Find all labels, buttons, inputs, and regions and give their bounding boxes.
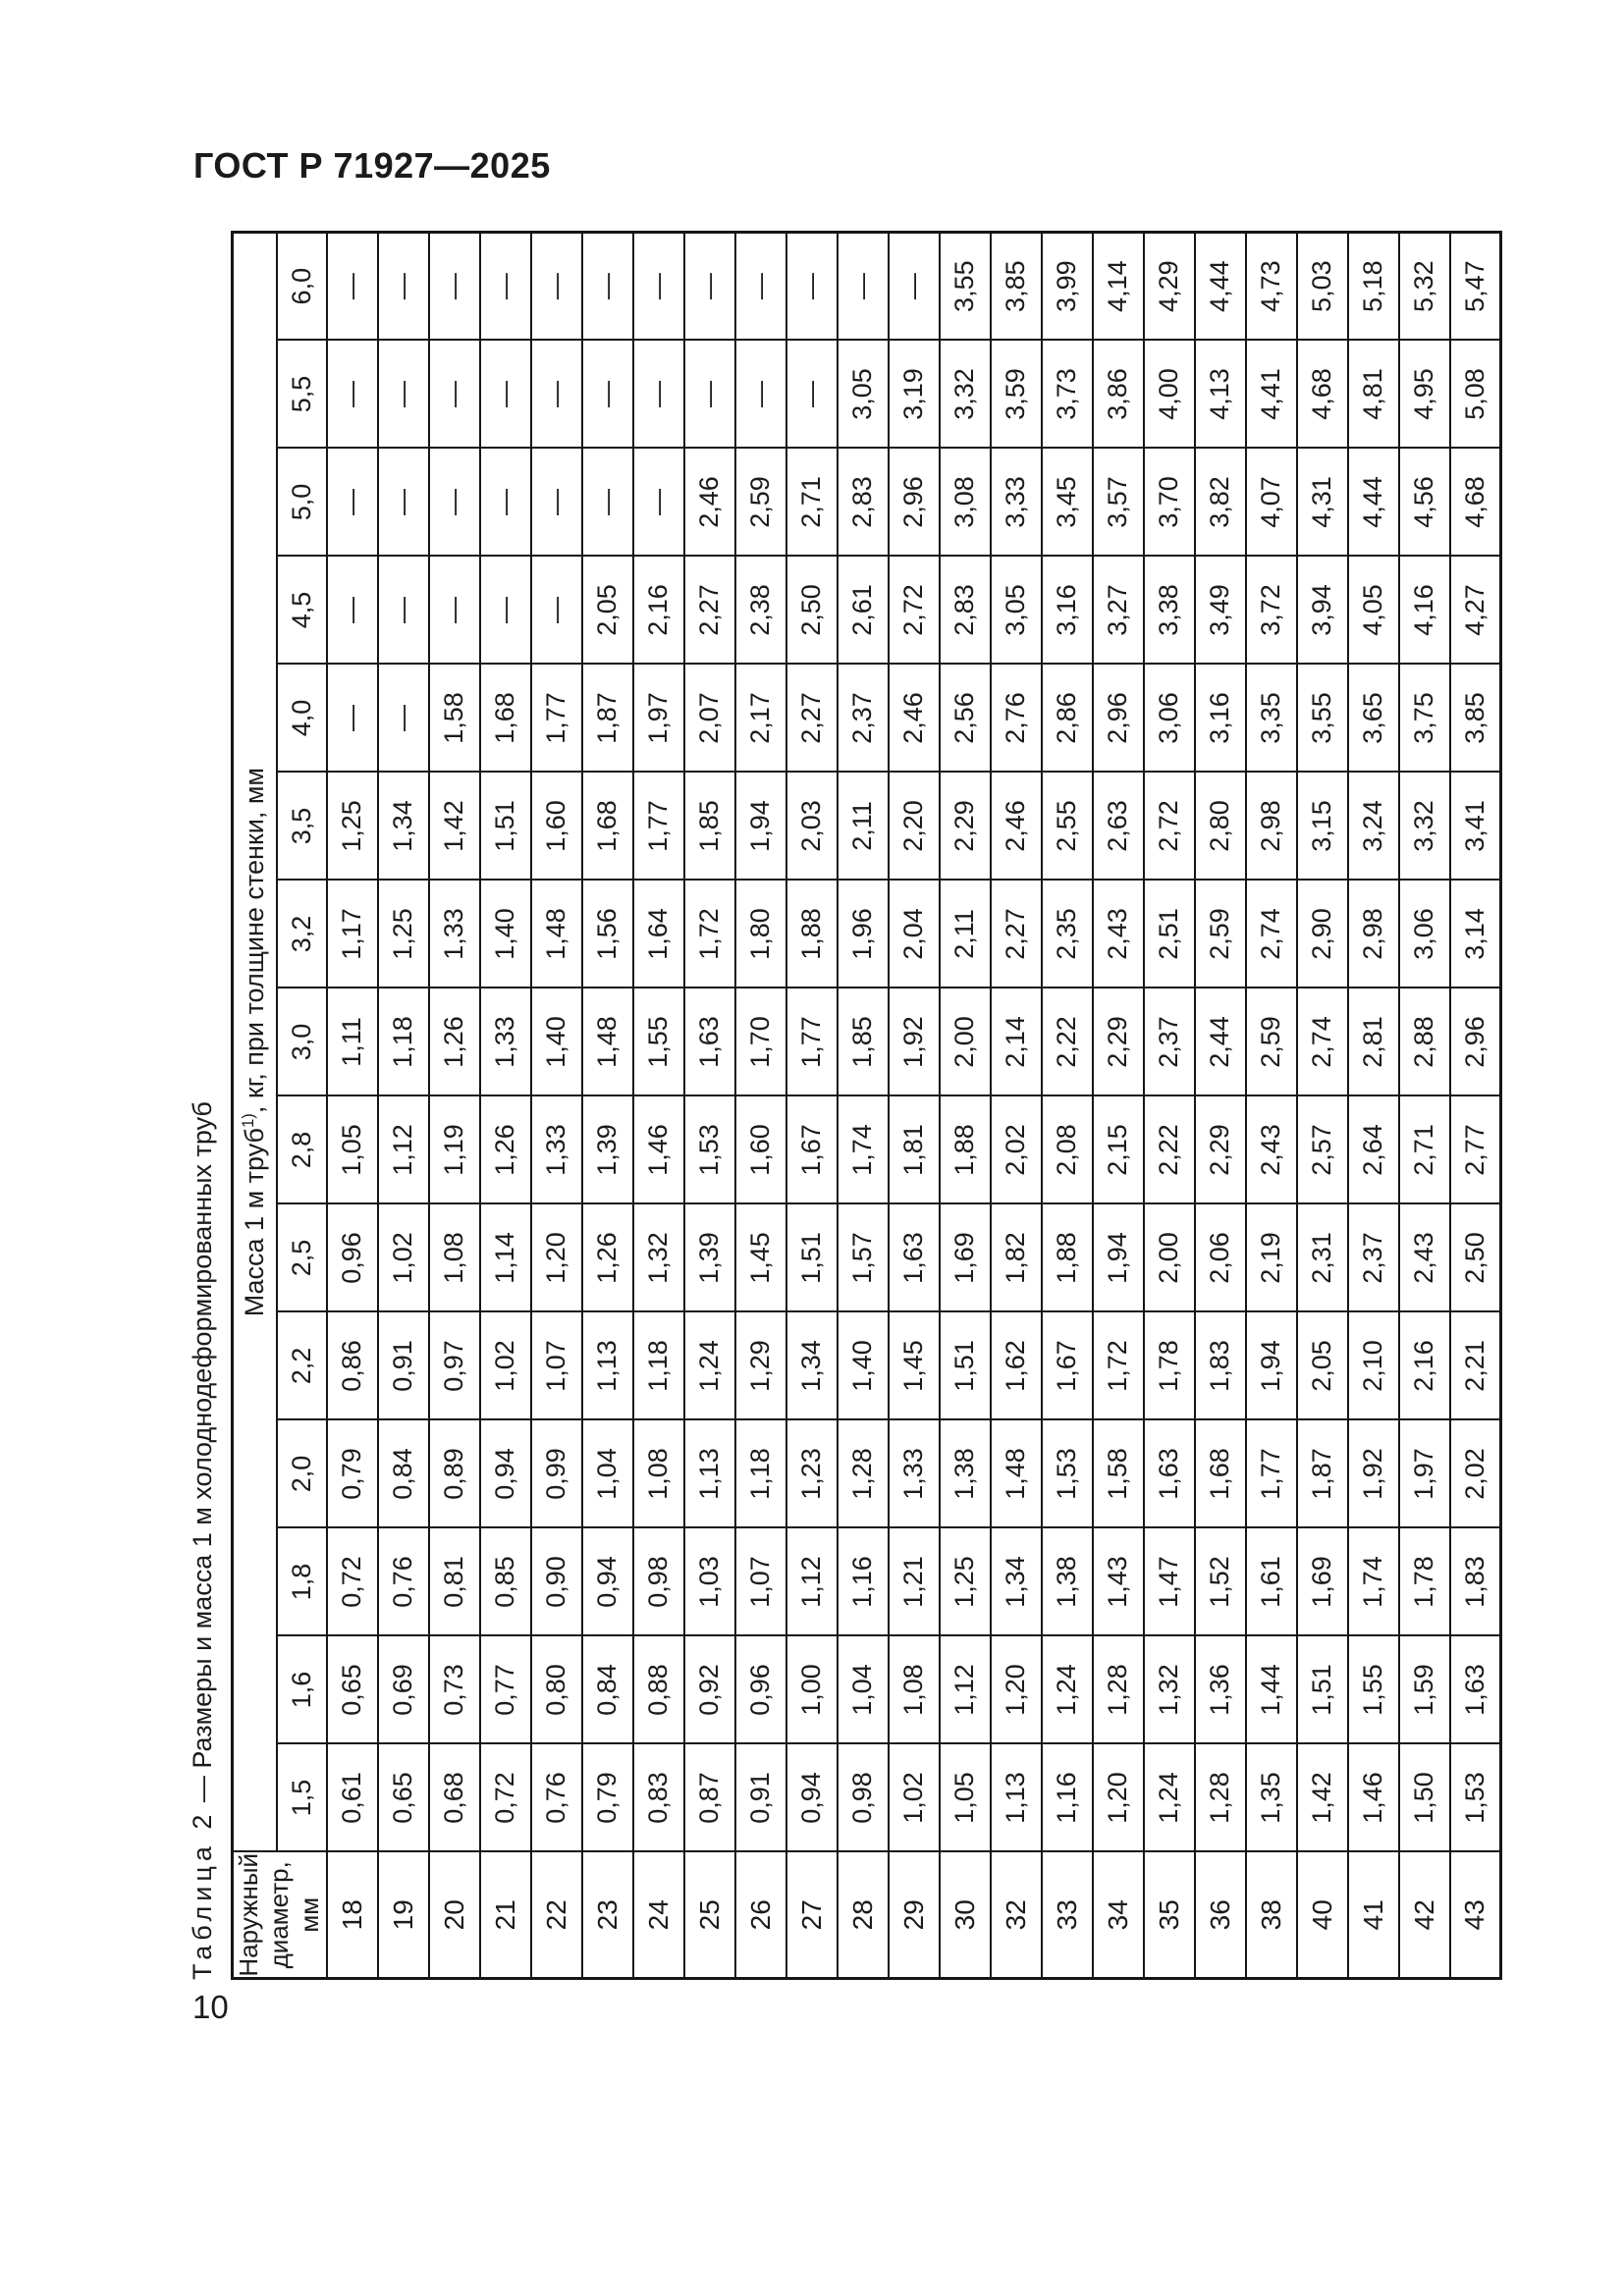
mass-value-cell: 4,56 xyxy=(1399,449,1450,557)
table-row: 401,421,511,691,872,052,312,572,742,903,… xyxy=(1297,232,1348,1978)
mass-value-cell: 1,20 xyxy=(531,1204,582,1312)
mass-value-cell: 1,94 xyxy=(1246,1312,1297,1420)
mass-value-cell: 1,44 xyxy=(1246,1636,1297,1744)
mass-value-cell: 1,12 xyxy=(940,1636,991,1744)
mass-value-cell: 2,37 xyxy=(1348,1204,1399,1312)
mass-value-cell: 1,55 xyxy=(1348,1636,1399,1744)
mass-value-cell: 0,80 xyxy=(531,1636,582,1744)
mass-value-cell: 0,96 xyxy=(735,1636,786,1744)
mass-value-cell: 0,69 xyxy=(378,1636,429,1744)
mass-value-empty-cell: — xyxy=(582,232,633,340)
mass-value-cell: 2,11 xyxy=(838,773,889,881)
mass-value-cell: 1,94 xyxy=(1093,1204,1144,1312)
mass-value-cell: 1,74 xyxy=(1348,1528,1399,1636)
mass-value-empty-cell: — xyxy=(684,232,735,340)
mass-value-cell: 1,25 xyxy=(940,1528,991,1636)
mass-value-cell: 1,45 xyxy=(735,1204,786,1312)
mass-value-cell: 1,19 xyxy=(429,1096,480,1204)
mass-value-cell: 4,41 xyxy=(1246,341,1297,449)
mass-value-cell: 2,43 xyxy=(1399,1204,1450,1312)
mass-value-cell: 1,63 xyxy=(1144,1420,1195,1528)
mass-value-cell: 1,60 xyxy=(735,1096,786,1204)
table-row: 431,531,631,832,022,212,502,772,963,143,… xyxy=(1450,232,1501,1978)
mass-value-cell: 2,74 xyxy=(1297,988,1348,1096)
table-head: Наружныйдиаметр, мм Масса 1 м труб1), кг… xyxy=(233,232,327,1978)
mass-value-cell: 2,19 xyxy=(1246,1204,1297,1312)
mass-value-cell: 2,90 xyxy=(1297,881,1348,988)
mass-value-cell: 2,72 xyxy=(889,557,940,665)
diameter-column-header: Наружныйдиаметр, мм xyxy=(233,1852,327,1979)
mass-value-cell: 3,49 xyxy=(1195,557,1246,665)
table-row: 220,760,800,900,991,071,201,331,401,481,… xyxy=(531,232,582,1978)
mass-value-cell: 2,29 xyxy=(1195,1096,1246,1204)
mass-value-cell: 0,98 xyxy=(633,1528,684,1636)
mass-value-cell: 0,81 xyxy=(429,1528,480,1636)
mass-value-cell: 3,86 xyxy=(1093,341,1144,449)
mass-value-cell: 3,08 xyxy=(940,449,991,557)
mass-value-cell: 1,48 xyxy=(991,1420,1042,1528)
mass-value-cell: 1,51 xyxy=(786,1204,838,1312)
diameter-cell: 21 xyxy=(480,1852,531,1979)
mass-value-cell: 2,44 xyxy=(1195,988,1246,1096)
mass-value-cell: 1,59 xyxy=(1399,1636,1450,1744)
mass-value-empty-cell: — xyxy=(429,341,480,449)
diameter-cell: 26 xyxy=(735,1852,786,1979)
mass-value-cell: 1,17 xyxy=(327,881,378,988)
mass-value-cell: 2,20 xyxy=(889,773,940,881)
diameter-header-line2: диаметр, мм xyxy=(264,1861,324,1968)
mass-value-cell: 1,18 xyxy=(735,1420,786,1528)
mass-value-cell: 1,33 xyxy=(480,988,531,1096)
mass-value-cell: 1,32 xyxy=(1144,1636,1195,1744)
mass-value-cell: 1,28 xyxy=(1093,1636,1144,1744)
mass-value-cell: 3,15 xyxy=(1297,773,1348,881)
mass-value-cell: 2,80 xyxy=(1195,773,1246,881)
mass-value-cell: 2,64 xyxy=(1348,1096,1399,1204)
mass-value-cell: 2,46 xyxy=(684,449,735,557)
mass-value-cell: 2,07 xyxy=(684,665,735,773)
mass-value-cell: 3,32 xyxy=(1399,773,1450,881)
mass-value-cell: 0,98 xyxy=(838,1744,889,1852)
mass-value-cell: 1,16 xyxy=(1042,1744,1093,1852)
document-standard-code: ГОСТ Р 71927—2025 xyxy=(193,145,551,187)
mass-value-cell: 1,81 xyxy=(889,1096,940,1204)
mass-value-cell: 0,84 xyxy=(378,1420,429,1528)
rotated-table-block: Таблица 2 — Размеры и масса 1 м холоднод… xyxy=(187,233,1509,1980)
diameter-cell: 20 xyxy=(429,1852,480,1979)
table-caption-text: — Размеры и масса 1 м холоднодеформирова… xyxy=(188,1101,217,1810)
mass-value-cell: 3,32 xyxy=(940,341,991,449)
mass-value-cell: 1,56 xyxy=(582,881,633,988)
mass-value-cell: 1,52 xyxy=(1195,1528,1246,1636)
mass-value-cell: 2,56 xyxy=(940,665,991,773)
mass-value-cell: 1,88 xyxy=(940,1096,991,1204)
mass-value-cell: 1,53 xyxy=(684,1096,735,1204)
mass-value-cell: 2,37 xyxy=(838,665,889,773)
mass-value-cell: 2,98 xyxy=(1246,773,1297,881)
mass-value-cell: 4,44 xyxy=(1195,232,1246,340)
mass-value-cell: 1,63 xyxy=(889,1204,940,1312)
mass-value-cell: 1,16 xyxy=(838,1528,889,1636)
mass-value-cell: 3,35 xyxy=(1246,665,1297,773)
mass-value-cell: 1,77 xyxy=(786,988,838,1096)
mass-value-cell: 1,12 xyxy=(786,1528,838,1636)
mass-value-cell: 2,77 xyxy=(1450,1096,1501,1204)
mass-value-cell: 2,02 xyxy=(991,1096,1042,1204)
mass-value-empty-cell: — xyxy=(327,449,378,557)
mass-value-cell: 3,14 xyxy=(1450,881,1501,988)
diameter-cell: 19 xyxy=(378,1852,429,1979)
footnote-marker: 1) xyxy=(239,1113,257,1128)
mass-value-cell: 1,21 xyxy=(889,1528,940,1636)
mass-value-cell: 1,62 xyxy=(991,1312,1042,1420)
mass-value-cell: 1,04 xyxy=(582,1420,633,1528)
mass-value-cell: 3,73 xyxy=(1042,341,1093,449)
mass-value-cell: 1,12 xyxy=(378,1096,429,1204)
mass-value-cell: 1,07 xyxy=(531,1312,582,1420)
mass-value-cell: 4,44 xyxy=(1348,449,1399,557)
mass-value-cell: 0,79 xyxy=(582,1744,633,1852)
mass-value-empty-cell: — xyxy=(531,341,582,449)
mass-value-cell: 3,72 xyxy=(1246,557,1297,665)
mass-value-cell: 5,18 xyxy=(1348,232,1399,340)
mass-value-cell: 1,88 xyxy=(786,881,838,988)
mass-value-empty-cell: — xyxy=(531,449,582,557)
table-row: 351,241,321,471,631,782,002,222,372,512,… xyxy=(1144,232,1195,1978)
mass-value-cell: 2,27 xyxy=(991,881,1042,988)
mass-value-cell: 2,02 xyxy=(1450,1420,1501,1528)
mass-value-cell: 1,77 xyxy=(531,665,582,773)
mass-value-cell: 2,04 xyxy=(889,881,940,988)
mass-value-empty-cell: — xyxy=(378,557,429,665)
mass-column-header: Масса 1 м труб1), кг, при толщине стенки… xyxy=(233,232,277,1851)
mass-value-cell: 1,05 xyxy=(940,1744,991,1852)
mass-value-cell: 0,73 xyxy=(429,1636,480,1744)
mass-value-cell: 0,96 xyxy=(327,1204,378,1312)
mass-value-cell: 1,69 xyxy=(940,1204,991,1312)
mass-value-cell: 2,96 xyxy=(1450,988,1501,1096)
table-row: 321,131,201,341,481,621,822,022,142,272,… xyxy=(991,232,1042,1978)
mass-value-cell: 3,16 xyxy=(1042,557,1093,665)
mass-value-empty-cell: — xyxy=(735,232,786,340)
diameter-cell: 22 xyxy=(531,1852,582,1979)
mass-value-cell: 1,02 xyxy=(889,1744,940,1852)
mass-value-cell: 1,34 xyxy=(786,1312,838,1420)
diameter-cell: 41 xyxy=(1348,1852,1399,1979)
mass-value-cell: 4,68 xyxy=(1450,449,1501,557)
mass-value-cell: 1,97 xyxy=(633,665,684,773)
mass-value-cell: 2,08 xyxy=(1042,1096,1093,1204)
mass-value-cell: 2,63 xyxy=(1093,773,1144,881)
mass-value-cell: 0,79 xyxy=(327,1420,378,1528)
diameter-cell: 25 xyxy=(684,1852,735,1979)
mass-value-cell: 2,81 xyxy=(1348,988,1399,1096)
mass-value-cell: 1,39 xyxy=(582,1096,633,1204)
mass-value-cell: 3,45 xyxy=(1042,449,1093,557)
mass-value-cell: 1,26 xyxy=(429,988,480,1096)
mass-value-cell: 1,42 xyxy=(429,773,480,881)
thickness-header-cell: 3,2 xyxy=(277,881,327,988)
mass-value-empty-cell: — xyxy=(633,449,684,557)
mass-value-cell: 1,72 xyxy=(1093,1312,1144,1420)
mass-value-cell: 2,11 xyxy=(940,881,991,988)
mass-value-cell: 4,13 xyxy=(1195,341,1246,449)
mass-value-cell: 0,94 xyxy=(480,1420,531,1528)
mass-value-cell: 1,67 xyxy=(1042,1312,1093,1420)
mass-value-empty-cell: — xyxy=(327,665,378,773)
table-row: 301,051,121,251,381,511,691,882,002,112,… xyxy=(940,232,991,1978)
mass-value-empty-cell: — xyxy=(786,232,838,340)
mass-value-cell: 2,29 xyxy=(1093,988,1144,1096)
document-page: ГОСТ Р 71927—2025 Таблица 2 — Размеры и … xyxy=(0,0,1624,2296)
mass-value-cell: 3,85 xyxy=(991,232,1042,340)
mass-value-cell: 1,70 xyxy=(735,988,786,1096)
mass-value-cell: 4,81 xyxy=(1348,341,1399,449)
mass-value-empty-cell: — xyxy=(378,449,429,557)
mass-value-cell: 3,75 xyxy=(1399,665,1450,773)
mass-value-cell: 3,19 xyxy=(889,341,940,449)
mass-value-cell: 1,23 xyxy=(786,1420,838,1528)
mass-value-cell: 1,38 xyxy=(1042,1528,1093,1636)
mass-value-cell: 1,20 xyxy=(991,1636,1042,1744)
mass-value-cell: 1,18 xyxy=(633,1312,684,1420)
mass-value-cell: 2,14 xyxy=(991,988,1042,1096)
mass-value-cell: 1,82 xyxy=(991,1204,1042,1312)
mass-value-cell: 0,85 xyxy=(480,1528,531,1636)
mass-value-cell: 5,08 xyxy=(1450,341,1501,449)
mass-value-empty-cell: — xyxy=(838,232,889,340)
mass-value-empty-cell: — xyxy=(327,557,378,665)
table-row: 341,201,281,431,581,721,942,152,292,432,… xyxy=(1093,232,1144,1978)
mass-value-cell: 0,97 xyxy=(429,1312,480,1420)
mass-value-cell: 2,21 xyxy=(1450,1312,1501,1420)
mass-value-cell: 2,86 xyxy=(1042,665,1093,773)
diameter-header-line1: Наружный xyxy=(234,1853,263,1977)
diameter-cell: 30 xyxy=(940,1852,991,1979)
thickness-header-cell: 5,5 xyxy=(277,341,327,449)
mass-value-cell: 2,83 xyxy=(838,449,889,557)
mass-value-cell: 1,80 xyxy=(735,881,786,988)
mass-value-cell: 2,06 xyxy=(1195,1204,1246,1312)
diameter-cell: 36 xyxy=(1195,1852,1246,1979)
mass-value-cell: 1,43 xyxy=(1093,1528,1144,1636)
mass-value-cell: 4,16 xyxy=(1399,557,1450,665)
mass-value-cell: 1,57 xyxy=(838,1204,889,1312)
mass-value-cell: 1,92 xyxy=(889,988,940,1096)
mass-header-units: , кг, при толщине стенки, мм xyxy=(240,768,269,1113)
mass-value-cell: 1,13 xyxy=(684,1420,735,1528)
mass-value-cell: 2,51 xyxy=(1144,881,1195,988)
table-row: 230,790,840,941,041,131,261,391,481,561,… xyxy=(582,232,633,1978)
mass-value-cell: 0,61 xyxy=(327,1744,378,1852)
mass-value-cell: 2,43 xyxy=(1246,1096,1297,1204)
mass-value-cell: 2,71 xyxy=(1399,1096,1450,1204)
mass-value-empty-cell: — xyxy=(480,557,531,665)
mass-value-cell: 3,05 xyxy=(838,341,889,449)
mass-value-cell: 1,39 xyxy=(684,1204,735,1312)
mass-value-cell: 1,04 xyxy=(838,1636,889,1744)
mass-value-cell: 1,78 xyxy=(1144,1312,1195,1420)
diameter-cell: 23 xyxy=(582,1852,633,1979)
mass-value-cell: 1,64 xyxy=(633,881,684,988)
mass-value-cell: 1,58 xyxy=(429,665,480,773)
mass-value-cell: 1,83 xyxy=(1195,1312,1246,1420)
diameter-cell: 32 xyxy=(991,1852,1042,1979)
diameter-cell: 40 xyxy=(1297,1852,1348,1979)
mass-value-cell: 4,73 xyxy=(1246,232,1297,340)
mass-value-cell: 2,27 xyxy=(684,557,735,665)
mass-value-cell: 2,03 xyxy=(786,773,838,881)
mass-value-cell: 3,06 xyxy=(1144,665,1195,773)
rotor: Таблица 2 — Размеры и масса 1 м холоднод… xyxy=(187,233,1509,1980)
mass-value-cell: 0,99 xyxy=(531,1420,582,1528)
header-row-main: Наружныйдиаметр, мм Масса 1 м труб1), кг… xyxy=(233,232,277,1978)
size-mass-table: Наружныйдиаметр, мм Масса 1 м труб1), кг… xyxy=(231,231,1502,1980)
mass-value-cell: 1,20 xyxy=(1093,1744,1144,1852)
thickness-header-cell: 2,0 xyxy=(277,1420,327,1528)
mass-value-cell: 1,68 xyxy=(582,773,633,881)
mass-value-cell: 2,15 xyxy=(1093,1096,1144,1204)
mass-value-cell: 1,48 xyxy=(582,988,633,1096)
thickness-header-cell: 3,5 xyxy=(277,773,327,881)
mass-value-cell: 1,40 xyxy=(838,1312,889,1420)
mass-value-cell: 0,72 xyxy=(327,1528,378,1636)
mass-value-cell: 2,72 xyxy=(1144,773,1195,881)
diameter-cell: 24 xyxy=(633,1852,684,1979)
mass-value-cell: 3,41 xyxy=(1450,773,1501,881)
mass-value-cell: 2,10 xyxy=(1348,1312,1399,1420)
mass-value-cell: 2,27 xyxy=(786,665,838,773)
mass-value-cell: 1,36 xyxy=(1195,1636,1246,1744)
mass-value-cell: 1,53 xyxy=(1042,1420,1093,1528)
mass-value-cell: 3,24 xyxy=(1348,773,1399,881)
mass-value-cell: 3,55 xyxy=(940,232,991,340)
mass-value-cell: 4,27 xyxy=(1450,557,1501,665)
mass-value-cell: 1,85 xyxy=(684,773,735,881)
thickness-header-cell: 1,8 xyxy=(277,1528,327,1636)
mass-value-cell: 5,47 xyxy=(1450,232,1501,340)
mass-value-cell: 1,67 xyxy=(786,1096,838,1204)
mass-value-empty-cell: — xyxy=(531,232,582,340)
table-row: 270,941,001,121,231,341,511,671,771,882,… xyxy=(786,232,838,1978)
mass-value-empty-cell: — xyxy=(378,665,429,773)
mass-value-cell: 1,68 xyxy=(1195,1420,1246,1528)
mass-value-cell: 2,88 xyxy=(1399,988,1450,1096)
mass-value-cell: 1,83 xyxy=(1450,1528,1501,1636)
table-row: 240,830,880,981,081,181,321,461,551,641,… xyxy=(633,232,684,1978)
mass-value-cell: 5,03 xyxy=(1297,232,1348,340)
mass-value-cell: 4,05 xyxy=(1348,557,1399,665)
mass-value-cell: 1,24 xyxy=(1042,1636,1093,1744)
mass-value-cell: 3,55 xyxy=(1297,665,1348,773)
mass-value-cell: 1,26 xyxy=(480,1096,531,1204)
table-row: 280,981,041,161,281,401,571,741,851,962,… xyxy=(838,232,889,1978)
mass-value-cell: 2,98 xyxy=(1348,881,1399,988)
mass-value-cell: 1,32 xyxy=(633,1204,684,1312)
mass-value-cell: 2,57 xyxy=(1297,1096,1348,1204)
diameter-cell: 38 xyxy=(1246,1852,1297,1979)
mass-value-cell: 1,13 xyxy=(582,1312,633,1420)
mass-value-cell: 2,83 xyxy=(940,557,991,665)
mass-value-cell: 3,82 xyxy=(1195,449,1246,557)
mass-value-cell: 1,26 xyxy=(582,1204,633,1312)
mass-value-cell: 1,87 xyxy=(1297,1420,1348,1528)
mass-value-cell: 1,34 xyxy=(378,773,429,881)
mass-value-cell: 1,69 xyxy=(1297,1528,1348,1636)
mass-value-empty-cell: — xyxy=(735,341,786,449)
thickness-header-cell: 6,0 xyxy=(277,232,327,340)
mass-value-cell: 1,46 xyxy=(1348,1744,1399,1852)
mass-value-cell: 1,24 xyxy=(1144,1744,1195,1852)
mass-value-empty-cell: — xyxy=(378,341,429,449)
mass-value-empty-cell: — xyxy=(633,341,684,449)
mass-value-cell: 1,40 xyxy=(480,881,531,988)
mass-value-cell: 1,47 xyxy=(1144,1528,1195,1636)
table-caption: Таблица 2 — Размеры и масса 1 м холоднод… xyxy=(187,233,231,1980)
thickness-header-cell: 5,0 xyxy=(277,449,327,557)
mass-value-cell: 4,31 xyxy=(1297,449,1348,557)
mass-value-cell: 0,84 xyxy=(582,1636,633,1744)
diameter-cell: 34 xyxy=(1093,1852,1144,1979)
mass-value-cell: 1,51 xyxy=(940,1312,991,1420)
mass-value-cell: 1,92 xyxy=(1348,1420,1399,1528)
mass-value-cell: 3,59 xyxy=(991,341,1042,449)
mass-value-cell: 2,96 xyxy=(1093,665,1144,773)
mass-value-cell: 2,31 xyxy=(1297,1204,1348,1312)
mass-value-cell: 1,87 xyxy=(582,665,633,773)
mass-value-cell: 2,61 xyxy=(838,557,889,665)
mass-value-empty-cell: — xyxy=(582,341,633,449)
table-row: 411,461,551,741,922,102,372,642,812,983,… xyxy=(1348,232,1399,1978)
mass-value-cell: 0,68 xyxy=(429,1744,480,1852)
thickness-header-cell: 4,0 xyxy=(277,665,327,773)
thickness-header-row: 1,51,61,82,02,22,52,83,03,23,54,04,55,05… xyxy=(277,232,327,1978)
mass-value-cell: 1,00 xyxy=(786,1636,838,1744)
diameter-cell: 43 xyxy=(1450,1852,1501,1979)
mass-value-cell: 2,37 xyxy=(1144,988,1195,1096)
mass-value-cell: 2,71 xyxy=(786,449,838,557)
mass-value-cell: 0,90 xyxy=(531,1528,582,1636)
mass-value-cell: 1,53 xyxy=(1450,1744,1501,1852)
mass-value-cell: 1,63 xyxy=(684,988,735,1096)
mass-value-cell: 4,95 xyxy=(1399,341,1450,449)
mass-value-cell: 1,85 xyxy=(838,988,889,1096)
mass-value-cell: 1,55 xyxy=(633,988,684,1096)
diameter-cell: 33 xyxy=(1042,1852,1093,1979)
mass-value-cell: 0,94 xyxy=(786,1744,838,1852)
table-row: 200,680,730,810,890,971,081,191,261,331,… xyxy=(429,232,480,1978)
diameter-cell: 35 xyxy=(1144,1852,1195,1979)
mass-value-cell: 4,00 xyxy=(1144,341,1195,449)
mass-value-empty-cell: — xyxy=(684,341,735,449)
mass-value-empty-cell: — xyxy=(429,232,480,340)
mass-value-cell: 0,76 xyxy=(378,1528,429,1636)
thickness-header-cell: 3,0 xyxy=(277,988,327,1096)
mass-value-cell: 1,33 xyxy=(429,881,480,988)
mass-value-cell: 2,43 xyxy=(1093,881,1144,988)
diameter-cell: 28 xyxy=(838,1852,889,1979)
mass-value-cell: 1,08 xyxy=(633,1420,684,1528)
mass-value-cell: 1,51 xyxy=(1297,1636,1348,1744)
mass-value-empty-cell: — xyxy=(327,232,378,340)
mass-value-cell: 1,68 xyxy=(480,665,531,773)
mass-value-cell: 2,17 xyxy=(735,665,786,773)
mass-value-cell: 1,77 xyxy=(1246,1420,1297,1528)
table-row: 361,281,361,521,681,832,062,292,442,592,… xyxy=(1195,232,1246,1978)
mass-value-cell: 0,89 xyxy=(429,1420,480,1528)
mass-value-cell: 0,94 xyxy=(582,1528,633,1636)
table-caption-label: Таблица 2 xyxy=(188,1810,217,1980)
